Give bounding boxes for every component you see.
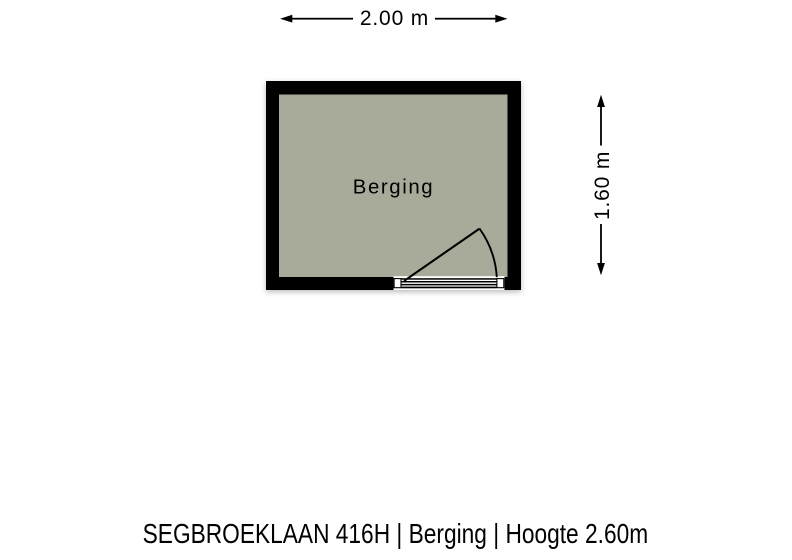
svg-text:2.00 m: 2.00 m [360,7,429,30]
svg-text:SEGBROEKLAAN 416H | Berging |: SEGBROEKLAAN 416H | Berging | Hoogte 2.6… [143,518,649,549]
svg-text:Berging: Berging [353,176,434,198]
svg-text:1.60 m: 1.60 m [591,151,614,220]
